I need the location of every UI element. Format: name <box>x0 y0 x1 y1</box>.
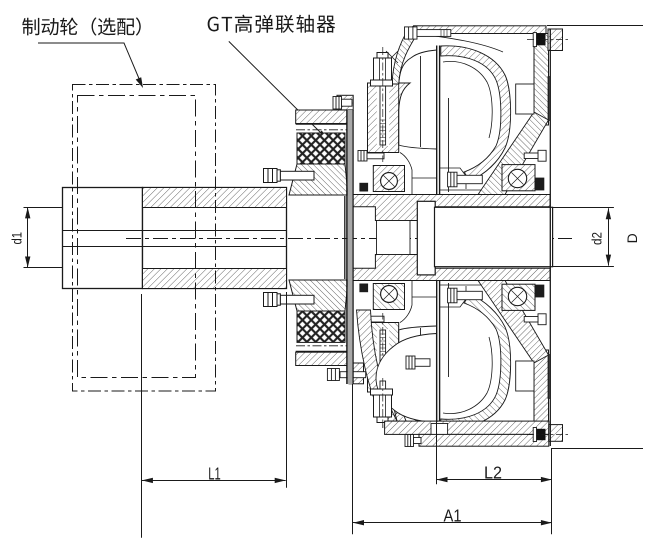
svg-text:L2: L2 <box>484 462 502 482</box>
svg-text:L1: L1 <box>208 463 221 483</box>
svg-text:D: D <box>624 233 640 243</box>
svg-text:d2: d2 <box>590 232 605 245</box>
svg-text:A1: A1 <box>444 505 462 525</box>
svg-text:d1: d1 <box>10 232 25 245</box>
